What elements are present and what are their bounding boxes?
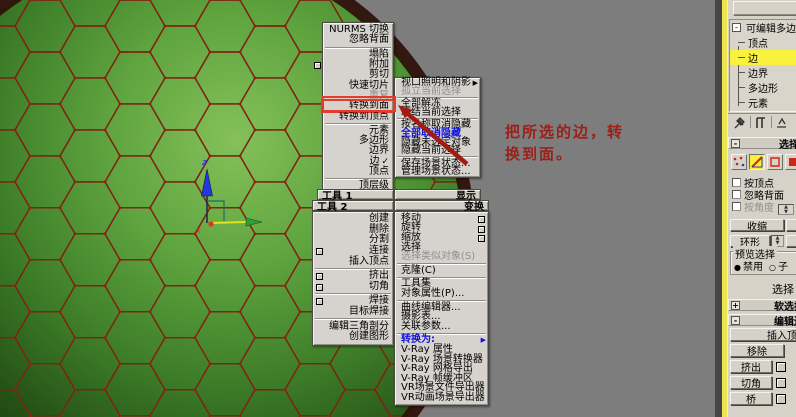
menu-item-label: 顶点 <box>369 167 389 177</box>
radio-label: 子 <box>778 262 788 273</box>
menu-item-label: 选择类似对象(S) <box>401 252 475 262</box>
stack-item-label: 边界 <box>746 65 768 80</box>
show-end-result-icon[interactable] <box>754 116 768 130</box>
make-unique-icon[interactable] <box>775 116 789 130</box>
menu-item[interactable]: 对象属性(P)... <box>395 289 488 299</box>
polygon-icon[interactable] <box>785 154 796 170</box>
gizmo-x-label: x <box>195 226 201 235</box>
angle-spinner[interactable]: ▲▼ <box>778 204 794 215</box>
menu-item[interactable]: 转换到面 <box>323 101 393 111</box>
divider <box>750 116 751 128</box>
menu-item[interactable]: 顶点 <box>323 167 393 177</box>
selection-status: 选择 <box>772 281 796 297</box>
rollout-edit-edges-header[interactable]: - 编辑边 <box>728 314 796 326</box>
menu-item-label: 目标焊接 <box>349 307 389 317</box>
quad-menu-tools2: 创建删除分割连接插入顶点挤出切角焊接目标焊接编辑三角剖分创建图形 <box>312 211 394 346</box>
shrink-button[interactable]: 收缩 <box>730 219 784 231</box>
stack-item-label: 边 <box>746 50 758 65</box>
menu-item[interactable]: 创建 <box>313 214 393 225</box>
stack-root-label: 可编辑多边形 <box>744 20 796 35</box>
menu-item-label: 孤立当前选择 <box>401 87 461 97</box>
menu-item[interactable]: 创建图形 <box>313 332 393 343</box>
menu-item[interactable]: 关联参数... <box>395 322 488 332</box>
stack-toolbar <box>730 115 796 131</box>
menu-item-label: 插入顶点 <box>349 257 389 267</box>
rollout-selection-header[interactable]: - 选择 <box>728 137 796 149</box>
menu-item-label: 忽略背面 <box>349 35 389 45</box>
settings-box-icon[interactable] <box>316 248 323 255</box>
rollout-soft-selection-header[interactable]: + 软选择 <box>728 299 796 311</box>
menu-item-label: 管理场景状态... <box>401 167 471 177</box>
menu-item-label: 创建 <box>369 214 389 224</box>
stack-item[interactable]: 边界 <box>730 65 796 80</box>
menu-item-label: 创建图形 <box>349 332 389 342</box>
menu-item[interactable]: 忽略背面 <box>323 35 393 45</box>
stack-item[interactable]: 元素 <box>730 95 796 110</box>
stack-item-label: 多边形 <box>746 80 778 95</box>
divider <box>728 113 796 114</box>
checkbox-icon[interactable] <box>732 202 741 211</box>
stack-item-selected[interactable]: 边 <box>730 50 796 65</box>
annotation-text: 把所选的边，转换到面。 <box>505 121 624 165</box>
stack-item-label: 元素 <box>746 95 768 110</box>
menu-item[interactable]: 隐藏当前选择 <box>395 147 480 156</box>
menu-item-label: 克隆(C) <box>401 266 436 276</box>
rollout-edit-edges-title: 编辑边 <box>729 313 796 328</box>
menu-item-label: 关联参数... <box>401 322 451 332</box>
menu-item[interactable]: 孤立当前选择 <box>395 88 480 97</box>
menu-item[interactable]: 冻结当前选择 <box>395 109 480 118</box>
menu-item[interactable]: 剪切 <box>323 70 393 80</box>
edit-edges-button[interactable]: 切角 <box>730 376 772 389</box>
menu-item-label: 焊接 <box>369 296 389 306</box>
edit-edges-button[interactable]: 移除 <box>730 344 784 357</box>
menu-item-label: 分割 <box>369 235 389 245</box>
menu-item-label: 冻结当前选择 <box>401 108 461 118</box>
checkbox-icon[interactable] <box>732 178 741 187</box>
menu-item[interactable]: VR动画场景导出器 <box>395 393 488 403</box>
menu-item[interactable]: 连接 <box>313 246 393 257</box>
menu-item[interactable]: 挤出 <box>313 271 393 282</box>
menu-item[interactable]: 选择类似对象(S) <box>395 252 488 262</box>
gizmo-z-label: z <box>201 158 207 168</box>
quad-menu-transform: 移动旋转缩放选择选择类似对象(S)克隆(C)工具集对象属性(P)...曲线编辑器… <box>394 211 489 406</box>
settings-box-icon[interactable] <box>316 284 323 291</box>
panel-gap <box>715 0 722 417</box>
stack-root-row[interactable]: - 可编辑多边形 <box>730 20 796 35</box>
radio-icon[interactable]: ○ <box>769 263 776 272</box>
menu-item-label: 连接 <box>369 246 389 256</box>
menu-item-label: 挤出 <box>369 271 389 281</box>
menu-item-label: 转换到面 <box>349 101 389 111</box>
subobject-icon-row <box>728 152 796 172</box>
menu-item-label: VR动画场景导出器 <box>401 393 485 403</box>
preview-selection-group-label: 预览选择 <box>733 246 777 261</box>
menu-item-label: 对象属性(P)... <box>401 289 464 299</box>
menu-item[interactable]: 边界 <box>323 146 393 156</box>
quad-menu-display: 视口照明和阴影▶孤立当前选择全部解冻冻结当前选择按名称取消隐藏全部取消隐藏隐藏未… <box>394 77 481 178</box>
menu-item-label: 隐藏当前选择 <box>401 146 461 156</box>
radio-icon[interactable]: ● <box>734 263 741 272</box>
menu-item-label: 剪切 <box>369 70 389 80</box>
menu-item[interactable]: 插入顶点 <box>313 256 393 267</box>
edit-edges-button[interactable]: 桥 <box>730 392 772 405</box>
annotation-line1: 把所选的边，转 <box>505 123 624 141</box>
gizmo-y-label: y <box>249 206 256 216</box>
settings-box-icon[interactable] <box>316 298 323 305</box>
checkbox-icon[interactable] <box>732 190 741 199</box>
menu-item[interactable]: 切角 <box>313 282 393 293</box>
border-icon[interactable] <box>767 154 783 170</box>
radio-label: 禁用 <box>743 262 763 273</box>
modifier-list-dropdown[interactable] <box>733 1 796 15</box>
settings-box-icon[interactable] <box>478 226 485 233</box>
stack-item-label: 顶点 <box>746 35 768 50</box>
annotation-line2: 换到面。 <box>505 145 573 163</box>
divider <box>771 116 772 128</box>
loop-button[interactable] <box>786 235 796 247</box>
settings-box-icon[interactable] <box>776 362 786 372</box>
vertex-icon[interactable] <box>731 154 747 170</box>
menu-item[interactable]: 管理场景状态... <box>395 168 480 177</box>
edge-icon[interactable] <box>749 154 765 170</box>
menu-item[interactable]: 克隆(C) <box>395 266 488 276</box>
grow-button[interactable] <box>786 219 796 231</box>
settings-box-icon[interactable] <box>314 62 321 69</box>
checkbox-label: 按角度 <box>744 199 774 214</box>
rollout-selection-title: 选择 <box>729 136 796 151</box>
edit-edges-button[interactable]: 挤出 <box>730 360 772 373</box>
collapse-icon[interactable]: - <box>732 23 741 32</box>
stack-item[interactable]: 多边形 <box>730 80 796 95</box>
settings-box-icon[interactable] <box>776 394 786 404</box>
menu-item-label: 边界 <box>369 146 389 156</box>
gizmo-origin <box>208 221 213 226</box>
edit-edges-button[interactable]: 插入顶点 <box>730 328 796 341</box>
settings-box-icon[interactable] <box>478 235 485 242</box>
quad-header-transform: 变换 <box>394 200 489 211</box>
settings-box-icon[interactable] <box>316 273 323 280</box>
modifier-stack: - 可编辑多边形 顶点边边界多边形元素 <box>729 19 796 112</box>
quad-header-tools2: 工具 2 <box>312 200 394 211</box>
gizmo-y-axis <box>211 222 246 223</box>
settings-box-icon[interactable] <box>776 378 786 388</box>
pin-stack-icon[interactable] <box>733 116 747 130</box>
command-panel: - 可编辑多边形 顶点边边界多边形元素 - 选择 <box>715 0 796 417</box>
command-panel-body: - 可编辑多边形 顶点边边界多边形元素 - 选择 <box>727 0 796 417</box>
menu-item-label: 转换到顶点 <box>339 112 389 122</box>
quad-menu-tools1: NURMS 切换忽略背面塌陷附加剪切快速切片重复转换到面转换到顶点元素多边形边界… <box>322 22 394 194</box>
stack-item[interactable]: 顶点 <box>730 35 796 50</box>
menu-item[interactable]: 转换到顶点 <box>323 111 393 121</box>
submenu-arrow-icon: ▶ <box>481 335 486 345</box>
settings-box-icon[interactable] <box>478 216 485 223</box>
menu-item-label: 切角 <box>369 282 389 292</box>
menu-item[interactable]: 目标焊接 <box>313 307 393 318</box>
rollout-soft-selection-title: 软选择 <box>729 298 796 313</box>
